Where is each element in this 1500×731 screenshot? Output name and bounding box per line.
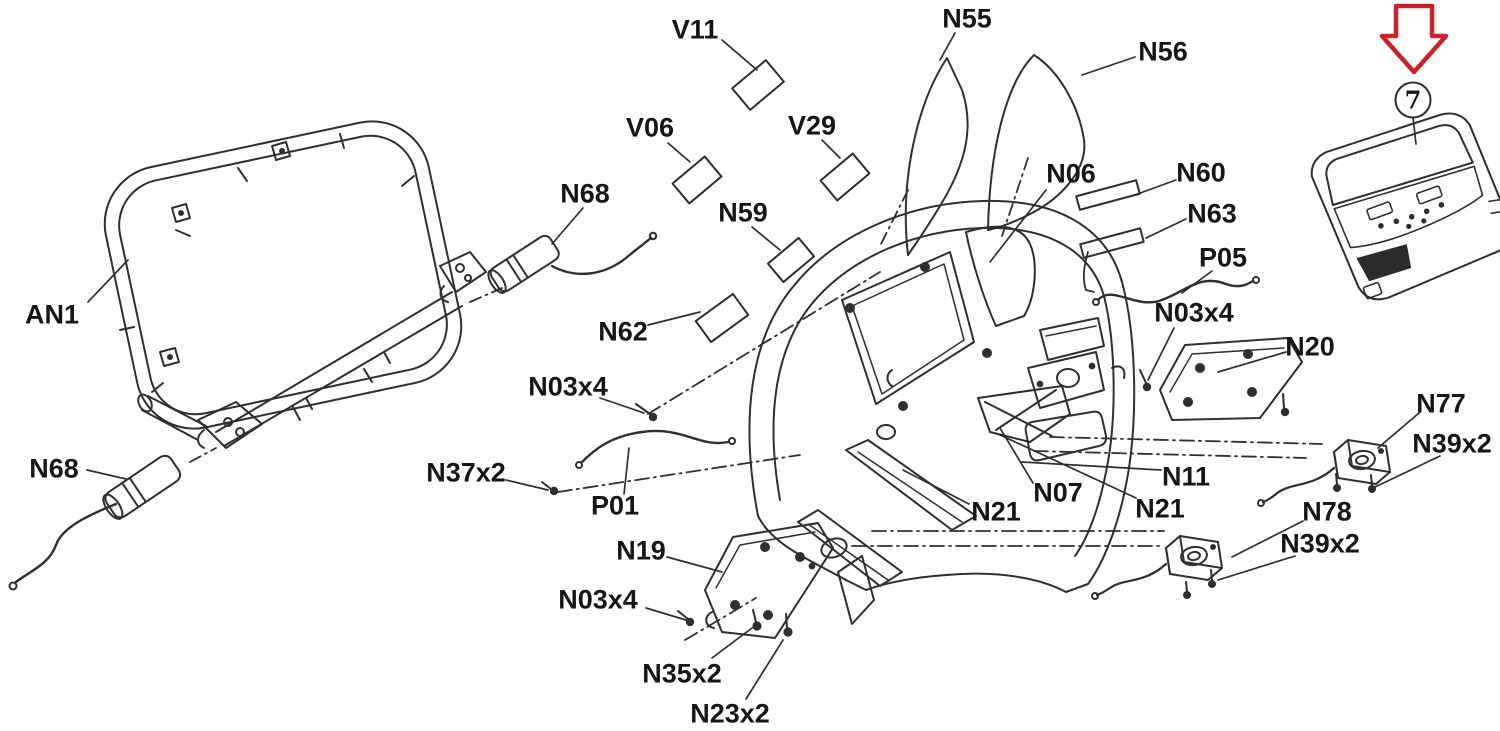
grip-sleeve-top — [470, 233, 656, 302]
part-label-n68: N68 — [29, 454, 79, 485]
part-label-p05: P05 — [1199, 243, 1247, 274]
callout-number-badge: 7 — [1395, 82, 1432, 119]
part-label-n62: N62 — [598, 317, 648, 348]
part-label-v06: V06 — [626, 113, 674, 144]
part-label-n37x2: N37x2 — [426, 458, 506, 489]
diagram-line-art — [0, 0, 1500, 731]
part-label-n78: N78 — [1302, 497, 1352, 528]
red-arrow-icon — [1382, 6, 1446, 72]
part-label-n35x2: N35x2 — [642, 659, 722, 690]
bracket-right — [1160, 338, 1302, 420]
part-label-n20: N20 — [1285, 332, 1335, 363]
part-label-n39x2: N39x2 — [1412, 429, 1492, 460]
part-label-n59: N59 — [718, 198, 768, 229]
part-label-n63: N63 — [1187, 199, 1237, 230]
part-label-n21: N21 — [1135, 494, 1185, 525]
part-label-p01: P01 — [591, 491, 639, 522]
part-label-n11: N11 — [1162, 462, 1210, 493]
parts-diagram: 7 V11N55N56V06V29N68N59N06N60N63P05AN1N6… — [0, 0, 1500, 731]
part-label-n03x4: N03x4 — [528, 372, 608, 403]
side-fin-parts — [880, 55, 1084, 255]
leader-lines — [87, 33, 1440, 699]
part-label-n55: N55 — [942, 4, 992, 35]
part-label-v11: V11 — [672, 15, 719, 46]
handlebar-frame — [94, 111, 486, 448]
part-label-n03x4: N03x4 — [558, 585, 638, 616]
display-unit — [1306, 101, 1500, 308]
part-label-n56: N56 — [1138, 37, 1188, 68]
part-label-n03x4: N03x4 — [1154, 298, 1234, 329]
bracket-bottom — [705, 523, 833, 638]
part-label-n21: N21 — [971, 497, 1021, 528]
part-label-n39x2: N39x2 — [1280, 529, 1360, 560]
part-label-an1: AN1 — [25, 300, 79, 331]
part-label-v29: V29 — [788, 111, 836, 142]
part-label-n77: N77 — [1416, 389, 1466, 420]
part-label-n06: N06 — [1046, 159, 1096, 190]
part-label-n60: N60 — [1176, 158, 1226, 189]
part-label-n68: N68 — [560, 179, 610, 210]
console-housing — [749, 201, 1134, 624]
part-label-n07: N07 — [1033, 478, 1083, 509]
part-label-n19: N19 — [616, 536, 666, 567]
part-label-n23x2: N23x2 — [690, 699, 770, 730]
